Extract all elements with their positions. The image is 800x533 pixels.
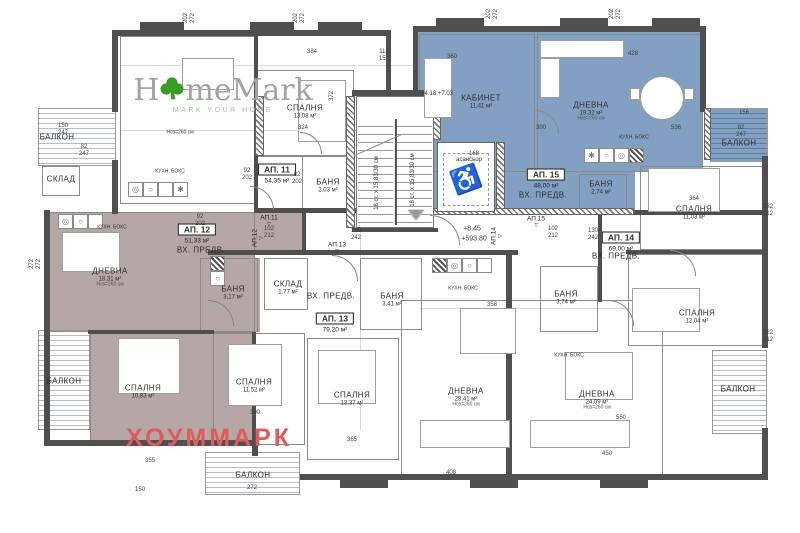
dimension-label: 156 xyxy=(739,110,749,116)
column-stub xyxy=(600,480,648,488)
table xyxy=(460,308,516,354)
elevator: ♿ xyxy=(437,142,495,212)
room-label: КАБИНЕТ11,41 м² xyxy=(461,94,501,109)
room-name: БАЛКОН xyxy=(721,386,756,395)
room-name: СКЛАД xyxy=(47,176,76,185)
entrance-triangle-icon: ▽ xyxy=(498,227,503,245)
dimension-label: 212 xyxy=(763,337,773,343)
dimension-label: 272 xyxy=(616,9,622,19)
column-stub xyxy=(318,22,362,30)
entrance-marker: АП.12▽ xyxy=(252,229,264,247)
dimension-label: 300 xyxy=(250,410,260,416)
wall xyxy=(112,30,390,36)
column-stub xyxy=(140,22,184,30)
entrance-marker-label: АП.13 xyxy=(328,241,346,248)
round-table xyxy=(640,76,684,120)
room-label: БАЛКОН xyxy=(722,140,757,149)
door-arc xyxy=(430,215,460,245)
dimension-label: 538 xyxy=(671,125,681,131)
room-name: БАНЯ xyxy=(380,292,404,301)
room-area: 13,37 м² xyxy=(334,400,370,407)
room-name: БАНЯ xyxy=(316,178,340,187)
dimension-label: 150 xyxy=(58,123,68,129)
bed xyxy=(228,344,282,406)
dimension-label: 272 xyxy=(29,259,35,269)
room-label: БАНЯ3,17 м² xyxy=(221,285,245,300)
room-name: КАБИНЕТ xyxy=(461,94,501,103)
dimension-label: 272 xyxy=(493,9,499,19)
dimension-label: 150 xyxy=(135,487,145,493)
entrance-marker-label: АП.11 xyxy=(260,214,278,221)
room-name: БАНЯ xyxy=(589,180,613,189)
room-height-note: Hсв=260 см xyxy=(573,117,608,123)
dimension-label: 157 xyxy=(379,56,389,62)
room-area: 13,08 м² xyxy=(287,113,323,120)
apartment-area: 48,00 м² xyxy=(527,183,565,191)
staircase xyxy=(356,96,434,228)
dimension-label: 355 xyxy=(145,458,155,464)
dimension-label: 202 xyxy=(195,221,205,227)
room-name: ВХ. ПРЕДВ. xyxy=(592,253,640,262)
room-label: БАЛКОН xyxy=(47,378,82,387)
dimension-label: 324 xyxy=(298,125,308,131)
stove-icon: ◎ xyxy=(447,258,462,273)
sofa xyxy=(530,420,630,448)
column-stub xyxy=(436,18,484,26)
room-height-note: Hсв=260 см xyxy=(92,283,127,289)
dimension-label: 247 xyxy=(79,151,89,157)
dimension-label: 102 xyxy=(264,226,274,232)
room-label: ВХ. ПРЕДВ. xyxy=(519,192,567,201)
kitchen-fixtures: ◎ ○ xyxy=(432,258,492,273)
stove-icon: ◎ xyxy=(58,214,73,229)
room-name: ДНЕВНА xyxy=(448,388,483,397)
misc-label: КУХН. БОКС xyxy=(97,226,126,231)
apartment-area: 69,00 м² xyxy=(602,246,640,254)
dimension-label: 112 xyxy=(379,49,389,55)
room-name: БАЛКОН xyxy=(47,378,82,387)
room-label: ВХ. ПРЕДВ. xyxy=(177,247,225,256)
room-name: СПАЛНЯ xyxy=(236,378,272,387)
entrance-triangle-icon: ▽ xyxy=(527,223,545,228)
counter xyxy=(158,182,173,197)
room-label: СПАЛНЯ10,83 м² xyxy=(125,384,161,399)
dimension-label: 550 xyxy=(616,415,626,421)
wall xyxy=(352,228,438,232)
room-name: СПАЛНЯ xyxy=(334,391,370,400)
stove-icon: ◎ xyxy=(128,182,143,197)
watermark-text: ХОУММАРК xyxy=(126,424,292,453)
room-label: БАНЯ3,41 м² xyxy=(380,292,404,307)
dimension-label: 92 xyxy=(244,168,251,174)
room-name: БАЛКОН xyxy=(236,472,271,481)
dimension-label: 360 xyxy=(447,54,457,60)
dimension-label: 202 xyxy=(183,13,189,23)
dimension-label: 247 xyxy=(58,130,68,136)
sink-icon: ○ xyxy=(462,258,477,273)
apartment-tag: АП. 1469,00 м² xyxy=(602,227,640,254)
room-area: 10,83 м² xyxy=(125,393,161,400)
room-label: БАЛКОН xyxy=(721,386,756,395)
misc-label: 18 ст. х 15,83/30 см xyxy=(410,153,416,207)
dimension-label: 272 xyxy=(190,13,196,23)
wall xyxy=(112,30,118,112)
apartment-area: 51,33 м² xyxy=(178,238,216,246)
floor-plan: ♿ ◎ ○ ✱ ◎ ○ ✱ ○ ◎ ◎ ○ ○ xyxy=(0,0,800,533)
apartment-tag: АП. 1154,35 м² xyxy=(258,159,296,186)
room-area: 12,04 м² xyxy=(679,318,715,325)
dimension-label: 202 xyxy=(609,9,615,19)
room-name: БАНЯ xyxy=(221,285,245,294)
desk xyxy=(424,58,452,118)
dimension-label: 212 xyxy=(264,233,274,239)
apartment-number: АП. 13 xyxy=(316,313,354,325)
hatch-wall xyxy=(496,142,505,212)
room-label: СПАЛНЯ13,37 м² xyxy=(334,391,370,406)
misc-label: КУХН. БОКС xyxy=(619,136,648,141)
column-stub xyxy=(560,18,608,26)
apartment-number: АП. 15 xyxy=(527,169,565,181)
apartment-area: 79,20 м² xyxy=(316,327,354,335)
wall xyxy=(88,330,214,334)
dimension-label: 364 xyxy=(689,196,699,202)
room-area: 1,77 м² xyxy=(274,289,303,296)
dimension-label: 212 xyxy=(548,233,558,239)
column-stub xyxy=(340,480,388,488)
chair xyxy=(684,88,694,100)
entrance-marker-label: АП.14 xyxy=(490,227,497,245)
chair xyxy=(630,88,640,100)
room-label: БАЛКОН xyxy=(236,472,271,481)
shaft xyxy=(629,148,644,163)
misc-label: КУХН. БОКС xyxy=(554,354,583,359)
room-area: 11,41 м² xyxy=(461,103,501,110)
dimension-label: 222 xyxy=(763,330,773,336)
dimension-label: 272 xyxy=(36,259,42,269)
door-arc xyxy=(332,255,358,281)
dimension-label: 82 xyxy=(81,144,88,150)
apartment-area: 54,35 м² xyxy=(258,178,296,186)
dimension-label: 242 xyxy=(351,235,361,241)
room-label: БАНЯ3,74 м² xyxy=(554,290,578,305)
room-name: БАНЯ xyxy=(554,290,578,299)
entrance-marker: АП.13▽ xyxy=(328,242,346,254)
room-name: ДНЕВНА xyxy=(92,268,127,277)
entrance-marker: АП.15▽ xyxy=(527,216,545,228)
misc-label: +593.80 xyxy=(461,236,487,243)
room-name: СПАЛНЯ xyxy=(287,104,323,113)
kitchen-fixtures: ◎ ○ ✱ xyxy=(128,182,188,197)
homemark-logo-text: HmeMark xyxy=(128,76,318,106)
room-label: БАНЯ2,03 м² xyxy=(316,178,340,193)
dimension-label: 202 xyxy=(242,175,252,181)
misc-label: +4.18:+7.03 xyxy=(421,91,453,97)
dimension-label: 247 xyxy=(736,132,746,138)
room-area: 3,17 м² xyxy=(221,294,245,301)
column-stub xyxy=(470,480,518,488)
dimension-label: 202 xyxy=(292,179,302,185)
room-label: СПАЛНЯ13,08 м² xyxy=(287,104,323,119)
dimension-label: 82 xyxy=(294,172,301,178)
room-name: СПАЛНЯ xyxy=(679,309,715,318)
shaft xyxy=(210,256,225,271)
apartment-number: АП. 14 xyxy=(602,232,640,244)
room-label: ВХ. ПРЕДВ. xyxy=(307,293,355,302)
misc-label: КУХН. БОКС xyxy=(155,170,184,175)
wall xyxy=(700,26,706,112)
dimension-label: 372 xyxy=(329,91,335,101)
room-name: БАЛКОН xyxy=(722,140,757,149)
room-area: 11,03 м² xyxy=(676,214,712,221)
dimension-label: 272 xyxy=(247,485,257,491)
dimension-label: 300 xyxy=(536,125,546,131)
dimension-label: 242 xyxy=(588,235,598,241)
room-area: 11,52 м² xyxy=(236,387,272,394)
room-name: ВХ. ПРЕДВ. xyxy=(177,247,225,256)
dimension-label: 408 xyxy=(446,470,456,476)
dimension-label: 212 xyxy=(763,211,773,217)
room-label: ВХ. ПРЕДВ. xyxy=(592,253,640,262)
apartment-tag: АП. 1379,20 м² xyxy=(316,308,354,335)
dimension-label: 102 xyxy=(548,226,558,232)
entrance-marker-label: АП.12 xyxy=(251,229,258,247)
sofa xyxy=(420,420,510,448)
misc-label: асансьор xyxy=(456,157,482,163)
room-name: СКЛАД xyxy=(274,280,303,289)
dimension-label: 82 xyxy=(738,125,745,131)
room-height-note: Hсв=260 см xyxy=(579,406,614,412)
entrance-marker-label: АП.15 xyxy=(527,215,545,222)
misc-label: КУХН. БОКС xyxy=(448,287,477,292)
room-area: 3,41 м² xyxy=(380,301,404,308)
dimension-label: 450 xyxy=(602,451,612,457)
dimension-label: 272 xyxy=(300,13,306,23)
column-stub xyxy=(250,22,294,30)
room-label: ДНЕВНА19,32 м²Hсв=260 см xyxy=(573,102,608,123)
room-area: 2,74 м² xyxy=(589,189,613,196)
room-area: 3,74 м² xyxy=(554,299,578,306)
room-label: СПАЛНЯ12,04 м² xyxy=(679,309,715,324)
wall xyxy=(112,160,118,214)
room-label: СКЛАД xyxy=(47,176,76,185)
wall xyxy=(413,26,418,90)
room-name: ВХ. ПРЕДВ. xyxy=(519,192,567,201)
column-stub xyxy=(652,18,700,26)
entrance-triangle-icon: ▽ xyxy=(328,249,346,254)
apartment-number: АП. 11 xyxy=(258,164,296,176)
wall xyxy=(762,428,768,480)
hatch-wall xyxy=(346,96,355,228)
dimension-label: 384 xyxy=(307,49,317,55)
dimension-label: 358 xyxy=(487,302,497,308)
room-label: СКЛАД1,77 м² xyxy=(274,280,303,295)
room-label: СПАЛНЯ11,03 м² xyxy=(676,205,712,220)
room-name: ВХ. ПРЕДВ. xyxy=(307,293,355,302)
wall xyxy=(302,208,306,254)
elevator-width-dim: 168 xyxy=(469,151,479,157)
entrance-marker: АП.14▽ xyxy=(491,227,503,245)
shaft xyxy=(432,258,447,273)
room-name: СПАЛНЯ xyxy=(676,205,712,214)
dimension-label: 202 xyxy=(293,13,299,23)
wall xyxy=(414,26,706,32)
dimension-label: 428 xyxy=(628,51,638,57)
counter: ✱ xyxy=(584,148,599,163)
stair-direction-arrow xyxy=(408,211,424,221)
counter: ✱ xyxy=(173,182,188,197)
wall xyxy=(626,250,766,254)
sofa xyxy=(540,58,560,98)
room-label: ДНЕВНА28,41 м²Hсв=260 см xyxy=(448,388,483,409)
room-name: СПАЛНЯ xyxy=(125,384,161,393)
counter xyxy=(477,258,492,273)
stove-icon: ◎ xyxy=(614,148,629,163)
kitchen-fixtures: ◎ ○ xyxy=(58,214,103,229)
room-name: ДНЕВНА xyxy=(579,391,614,400)
room-area: 2,03 м² xyxy=(316,187,340,194)
dimension-label: 130 xyxy=(588,228,598,234)
room-name: ДНЕВНА xyxy=(573,102,608,111)
clover-icon xyxy=(159,76,185,102)
dimension-label: 365 xyxy=(347,437,357,443)
kitchen-fixtures: ✱ ○ ◎ xyxy=(584,148,644,163)
room-height-note: Hсв=260 см xyxy=(448,403,483,409)
sink-icon: ○ xyxy=(73,214,88,229)
misc-label: +8.45 xyxy=(463,226,481,233)
room-label: БАНЯ2,74 м² xyxy=(589,180,613,195)
misc-label: 18 ст. х 15,83/30 см xyxy=(374,156,380,210)
sink-icon: ○ xyxy=(143,182,158,197)
wall xyxy=(44,210,50,446)
misc-label: Hсв=260 см xyxy=(166,131,193,136)
wall xyxy=(208,250,518,255)
hatch-wall xyxy=(704,108,711,160)
sofa xyxy=(540,40,624,58)
room-label: ДНЕВНА24,09 м²Hсв=260 см xyxy=(579,391,614,412)
room-label: СПАЛНЯ11,52 м² xyxy=(236,378,272,393)
kitchen-fixtures: ○ xyxy=(210,256,225,286)
dimension-label: 202 xyxy=(486,9,492,19)
dimension-label: 92 xyxy=(197,214,204,220)
dimension-label: 232 xyxy=(763,204,773,210)
dimension-label: 130 xyxy=(351,228,361,234)
sink-icon: ○ xyxy=(599,148,614,163)
apartment-tag: АП. 1548,00 м² xyxy=(527,164,565,191)
room-label: ДНЕВНА18,31 м²Hсв=260 см xyxy=(92,268,127,289)
